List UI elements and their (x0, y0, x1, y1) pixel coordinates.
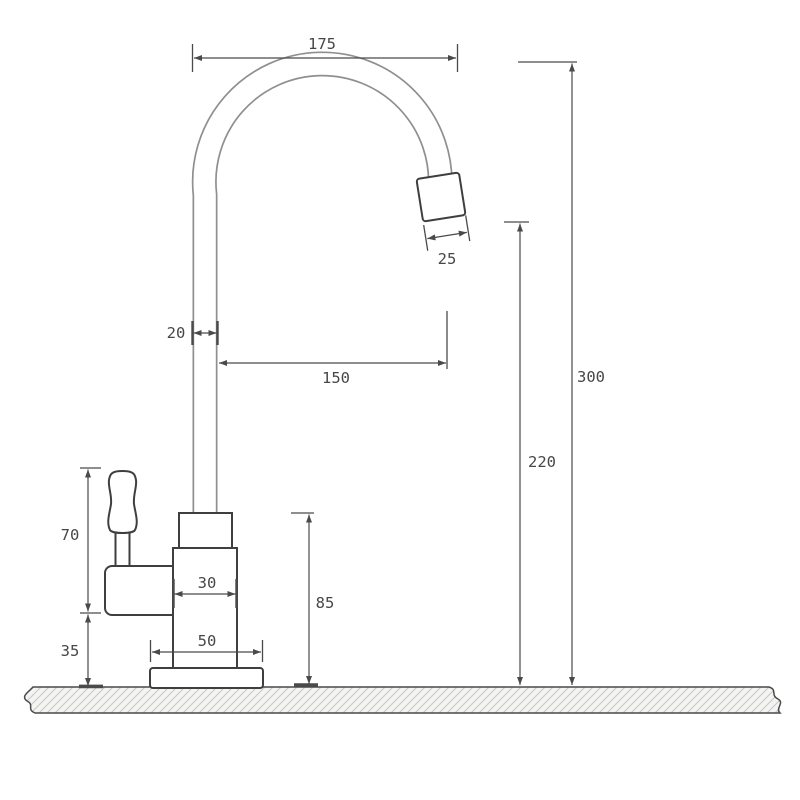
handle-valve-box (105, 566, 178, 615)
label-inlet-section-height: 35 (61, 642, 80, 660)
label-base-width: 50 (198, 632, 217, 650)
body-collar (179, 513, 232, 548)
label-spout-reach: 150 (322, 369, 350, 387)
label-total-height: 300 (577, 368, 605, 386)
ground-hatched-band (25, 687, 781, 713)
faucet-spout-tube (204, 64, 440, 516)
faucet-dimension-drawing: 175 25 20 150 300 220 70 35 30 50 85 (0, 0, 800, 800)
handle-grip (108, 471, 136, 533)
aerator-tip (416, 172, 465, 221)
technical-drawing-page: 175 25 20 150 300 220 70 35 30 50 85 (0, 0, 800, 800)
base-plate (150, 668, 263, 688)
spout-tube-outline (204, 64, 440, 516)
body-main (173, 548, 237, 668)
label-handle-section-height: 70 (61, 526, 80, 544)
label-aerator-width: 25 (438, 250, 457, 268)
dim-body-height (291, 513, 314, 684)
spout-tube-fill (204, 64, 440, 516)
label-pipe-width: 20 (167, 324, 186, 342)
dim-total-height (518, 62, 577, 685)
label-outlet-height: 220 (528, 453, 556, 471)
faucet-aerator-group (416, 172, 470, 250)
faucet-body-group (105, 471, 263, 688)
dim-handle-section-height (80, 468, 101, 613)
dim-spout-reach (219, 311, 447, 369)
handle-stem (116, 530, 130, 567)
label-spout-arc-width: 175 (308, 35, 336, 53)
ground-surface (25, 685, 781, 713)
dim-outlet-height (504, 222, 529, 685)
label-body-width: 30 (198, 574, 217, 592)
label-body-height: 85 (316, 594, 335, 612)
